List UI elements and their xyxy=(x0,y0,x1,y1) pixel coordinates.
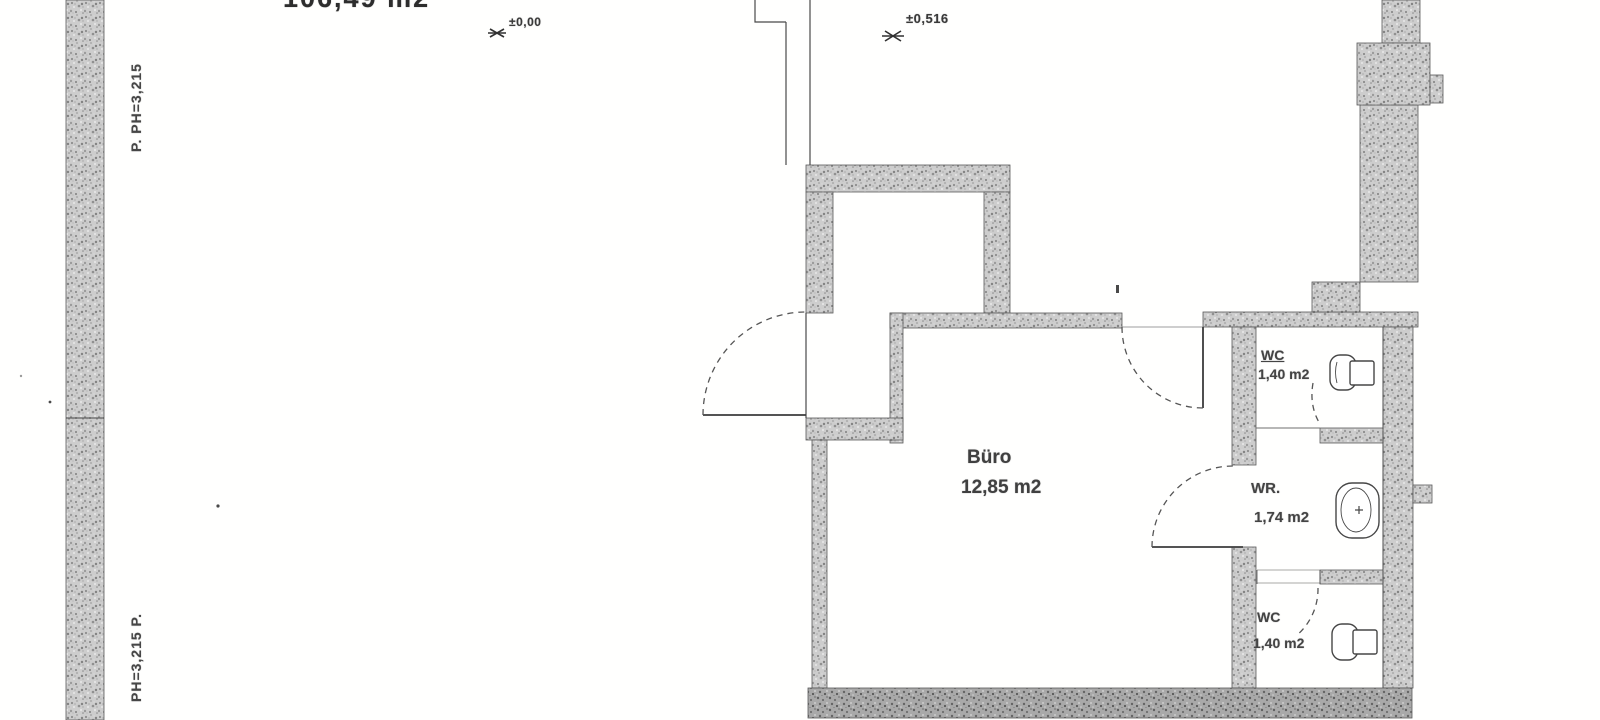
benchmark-icon-1 xyxy=(488,29,506,37)
wall-right-top-column xyxy=(1382,0,1420,43)
fixtures xyxy=(1330,355,1379,660)
total-area-label-partial: 106,49 m2 xyxy=(283,0,430,14)
wall-under-entry-door xyxy=(806,418,903,440)
wall-left-boundary xyxy=(66,0,104,720)
benchmark-icon-2 xyxy=(882,31,904,41)
room-area-wr: 1,74 m2 xyxy=(1254,509,1309,526)
room-area-wc-bottom: 1,40 m2 xyxy=(1253,635,1304,651)
walls xyxy=(66,0,1443,720)
wall-alcove-top xyxy=(806,165,1010,192)
tick-mark xyxy=(1116,285,1119,293)
toilet-bottom-icon xyxy=(1332,624,1377,660)
wall-alcove-left-pier xyxy=(806,192,833,313)
level-marker-2-label: ±0,516 xyxy=(906,11,949,26)
floor-plan-drawing xyxy=(0,0,1600,720)
toilet-top-icon xyxy=(1330,355,1374,390)
wall-buero-left xyxy=(812,440,827,688)
wall-right-top-block xyxy=(1357,43,1430,105)
room-area-buero: 12,85 m2 xyxy=(961,477,1041,499)
wc-top-door-leaf-dashed xyxy=(1312,383,1320,424)
wall-bathroom-left-lower xyxy=(1232,547,1256,688)
door-swing-arcs xyxy=(703,312,1320,636)
door-leaves xyxy=(703,327,1243,547)
wall-right-protrusion xyxy=(1413,485,1432,503)
wc-bottom-door-arc xyxy=(1296,588,1318,636)
room-name-wc-top: WC xyxy=(1261,347,1284,363)
wall-right-upper xyxy=(1360,105,1418,282)
wall-right-lower xyxy=(1383,327,1413,688)
washbasin-icon xyxy=(1336,483,1379,538)
corridor-notch xyxy=(755,0,786,22)
entry-door-arc xyxy=(703,312,806,415)
corridor-door-arc xyxy=(1122,327,1203,408)
wall-step-block xyxy=(1312,282,1360,312)
wall-bottom-band xyxy=(808,688,1412,718)
room-area-wc-top: 1,40 m2 xyxy=(1258,366,1309,382)
wr-door-arc xyxy=(1152,466,1233,547)
parapet-height-label-bottom: PH=3,215 P. xyxy=(128,613,144,702)
wall-bathroom-left-upper xyxy=(1232,327,1256,465)
room-name-buero: Büro xyxy=(967,447,1011,469)
wall-wc-top-bottom xyxy=(1320,428,1383,443)
room-name-wc-bottom: WC xyxy=(1257,609,1280,625)
wall-right-top-lip xyxy=(1430,75,1443,103)
room-name-wr: WR. xyxy=(1251,480,1280,497)
parapet-height-label-top: P. PH=3,215 xyxy=(128,63,144,152)
wall-alcove-right-pier xyxy=(984,192,1010,313)
wall-wr-bottom xyxy=(1320,570,1383,584)
level-marker-symbols xyxy=(488,29,904,41)
floor-plan-page: 106,49 m2 ±0,00 ±0,516 P. PH=3,215 PH=3,… xyxy=(0,0,1600,720)
wall-bathroom-top-band xyxy=(1203,312,1418,327)
level-marker-1-label: ±0,00 xyxy=(509,15,541,29)
thin-lines xyxy=(66,0,1383,688)
wall-buero-top xyxy=(890,313,1122,328)
